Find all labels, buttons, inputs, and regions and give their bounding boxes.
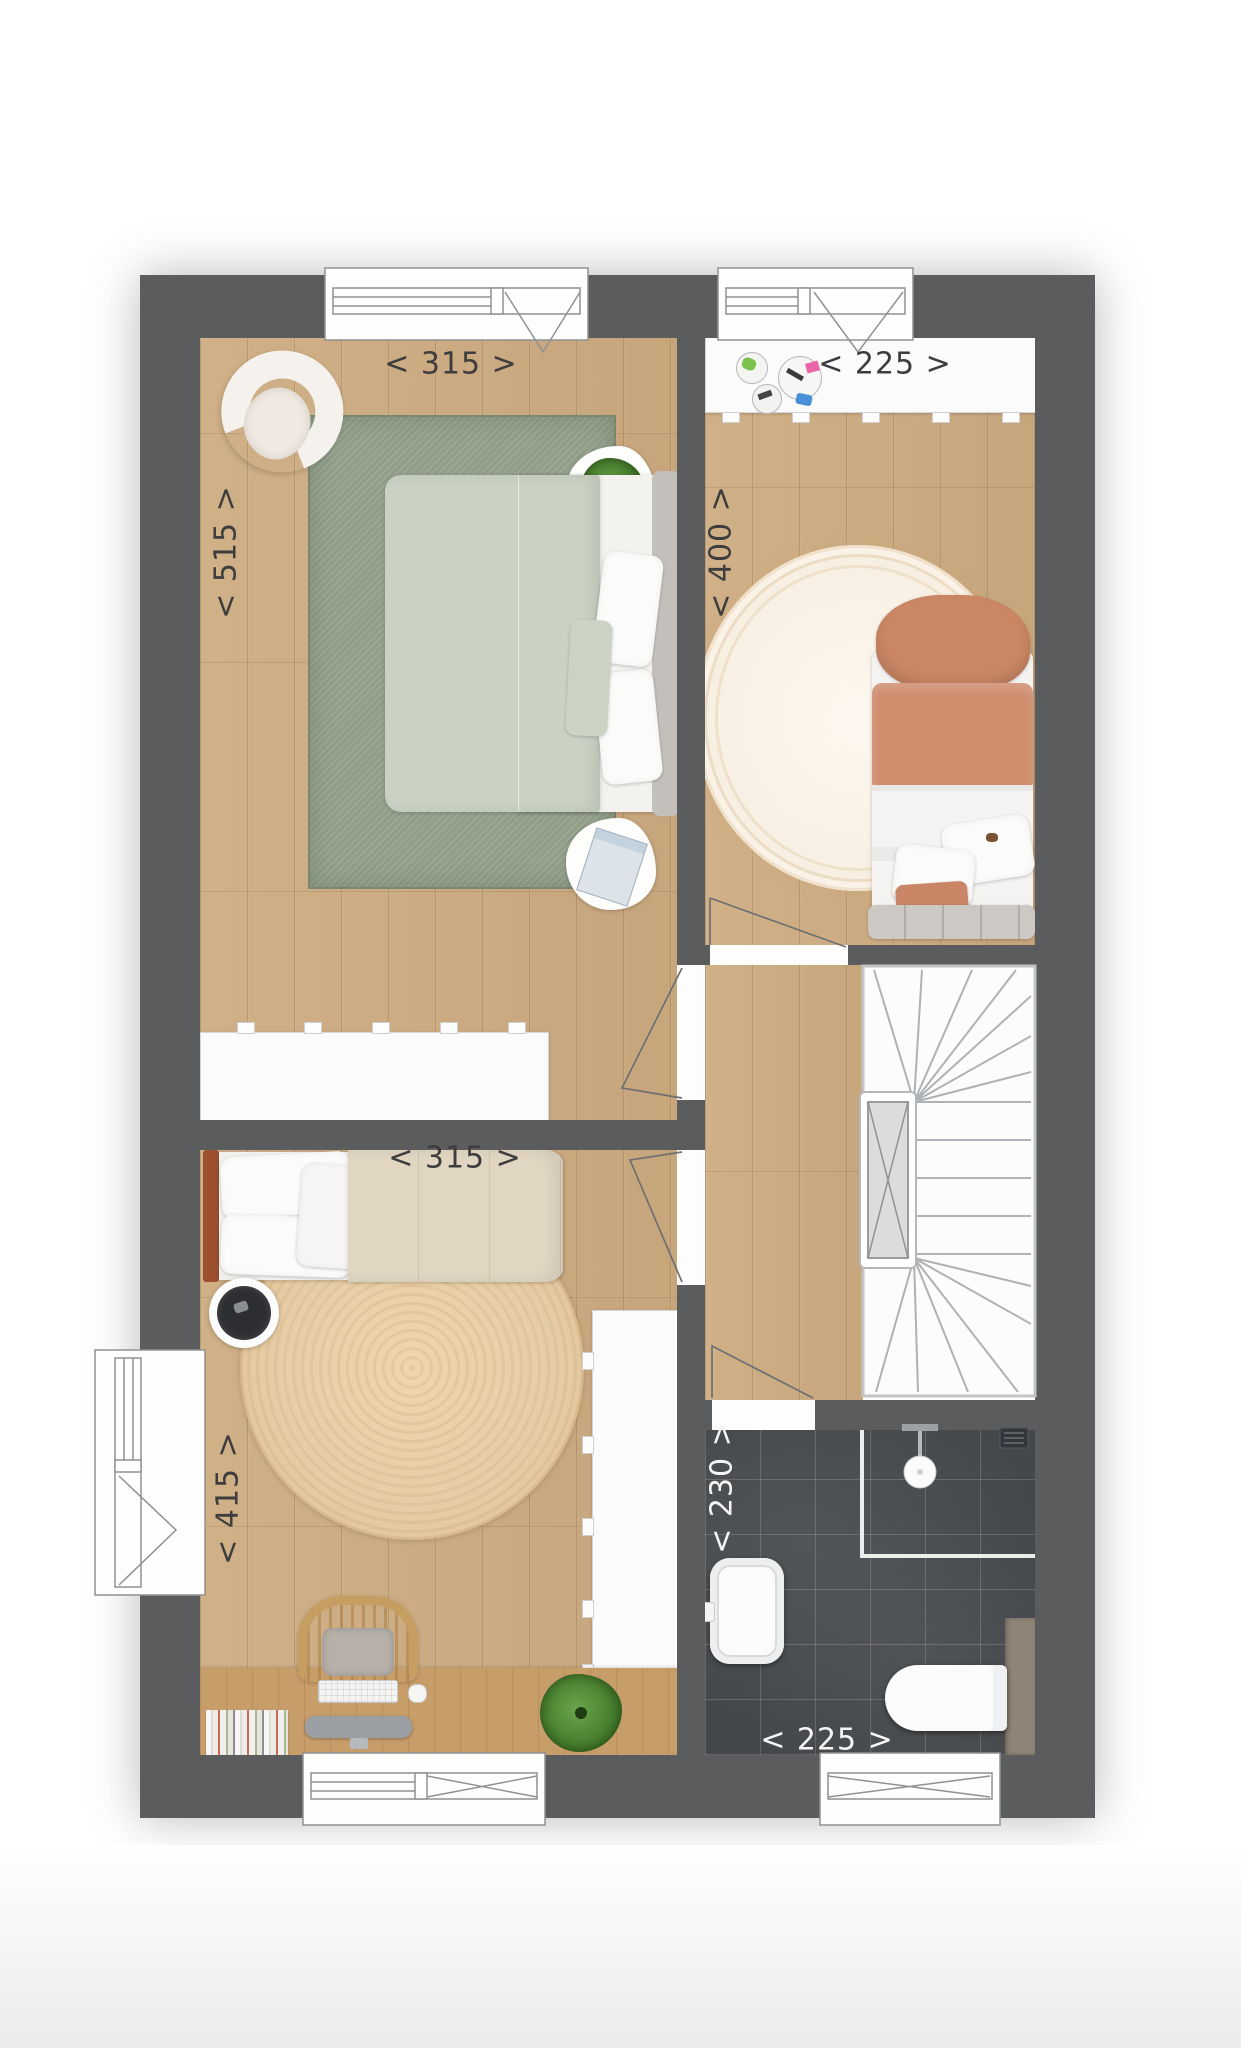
- door-opening-bedroom-bottom-left: [677, 1150, 705, 1285]
- washbasin: [710, 1558, 784, 1664]
- keyboard: [318, 1680, 398, 1703]
- dresser-handle: [792, 412, 810, 423]
- closet-handle: [582, 1436, 594, 1454]
- chair-cushion: [322, 1628, 394, 1676]
- wardrobe: [200, 1032, 549, 1122]
- monitor-stand: [350, 1738, 368, 1749]
- bed-headboard-rust: [203, 1150, 219, 1282]
- desk-chair: [298, 1596, 418, 1682]
- dimension-label-width-bottom-left: < 315 >: [388, 1141, 522, 1176]
- wall-left: [140, 338, 200, 1818]
- pillow-terracotta: [876, 595, 1030, 691]
- dresser-handle: [932, 412, 950, 423]
- wall-top: [140, 275, 1095, 338]
- door-opening-bedroom-top-right: [710, 945, 848, 965]
- dimension-label-depth-top-left: < 515 >: [209, 485, 244, 619]
- closet-handle: [582, 1600, 594, 1618]
- dimension-label-depth-top-right: < 400 >: [704, 485, 739, 619]
- monitor: [305, 1716, 412, 1738]
- dimension-label-depth-bottom-left: < 415 >: [211, 1431, 246, 1565]
- bed-duvet-sage: [385, 475, 600, 812]
- dresser-handle: [722, 412, 740, 423]
- wall-bottom: [200, 1755, 1035, 1818]
- wardrobe-handle: [304, 1022, 322, 1034]
- closet: [592, 1310, 678, 1694]
- book-row: [206, 1710, 288, 1755]
- duvet-fold-line: [518, 475, 519, 812]
- dresser-handle: [862, 412, 880, 423]
- closet-handle: [582, 1518, 594, 1536]
- wardrobe-handle: [508, 1022, 526, 1034]
- dimension-label-width-top-left: < 315 >: [384, 347, 518, 382]
- cushion-sage: [565, 619, 613, 737]
- dresser-handle: [1002, 412, 1020, 423]
- hallway-floor: [705, 965, 863, 1400]
- floor-plan-page: < 315 > < 515 > < 225 > < 400 > < 315 > …: [0, 0, 1241, 2048]
- toilet-partition: [1005, 1618, 1035, 1755]
- door-opening-bedroom-top-left: [677, 965, 705, 1100]
- toilet: [885, 1665, 1007, 1731]
- makeup-tray: [752, 384, 782, 414]
- dimension-label-width-top-right: < 225 >: [818, 347, 952, 382]
- dimension-label-width-bathroom: < 225 >: [760, 1723, 894, 1758]
- double-bed: [385, 475, 680, 812]
- wardrobe-handle: [237, 1022, 255, 1034]
- single-bed: [868, 595, 1035, 942]
- wardrobe-handle: [372, 1022, 390, 1034]
- teddy-bear: [986, 833, 998, 842]
- bed-duvet-terracotta: [872, 683, 1033, 787]
- page-bottom-fade: [0, 1845, 1241, 2048]
- mouse: [408, 1684, 427, 1703]
- wall-right: [1035, 338, 1095, 1818]
- closet-handle: [582, 1352, 594, 1370]
- dimension-label-depth-bathroom: < 230 >: [705, 1420, 740, 1554]
- wardrobe-handle: [440, 1022, 458, 1034]
- bed-bench: [868, 905, 1035, 939]
- speaker: [217, 1286, 271, 1340]
